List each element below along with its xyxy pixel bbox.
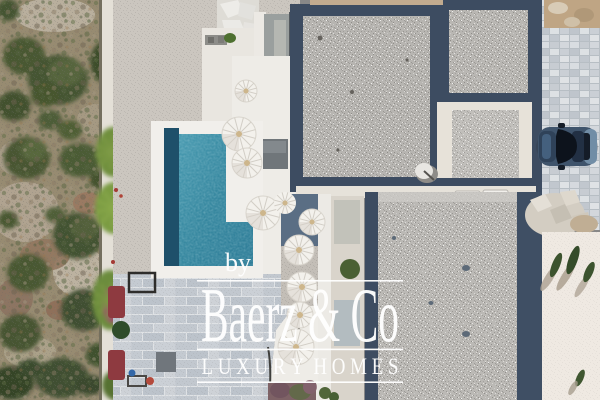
svg-text:Baerz & Co: Baerz & Co bbox=[201, 272, 399, 358]
svg-text:L U X U R Y H O M E S: L U X U R Y H O M E S bbox=[202, 354, 399, 379]
